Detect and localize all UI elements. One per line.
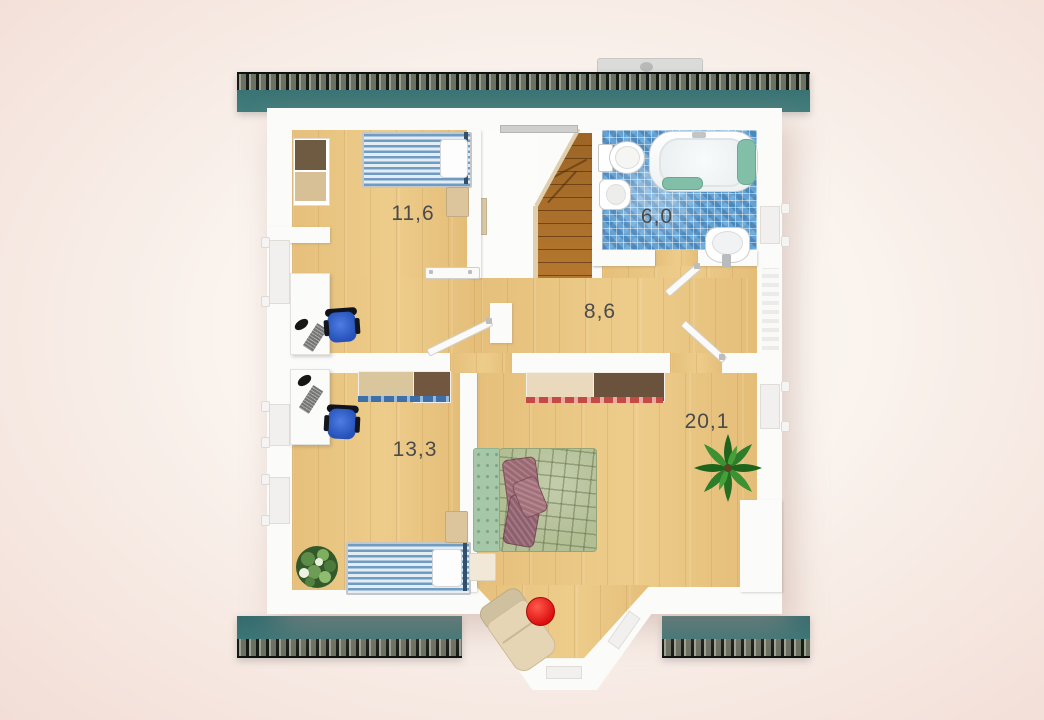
chair-seat (327, 408, 357, 439)
chair-armrest (324, 415, 330, 431)
radiator (762, 268, 779, 350)
double-bed-headboard (473, 448, 501, 552)
wardrobe-bottom (295, 172, 326, 201)
window-sill-tab (781, 203, 790, 214)
skylight-knob (640, 62, 653, 72)
area-label-bathroom: 6,0 (641, 205, 673, 229)
window-sill-tab (261, 515, 270, 526)
bathtub-cushion (662, 177, 703, 190)
door-hinge (694, 263, 700, 269)
pillow (432, 549, 462, 587)
window-sill-tab (781, 236, 790, 247)
wall-bathroom-bottom-a (592, 250, 655, 266)
sink-pedestal (722, 254, 731, 267)
area-label-hallway: 8,6 (584, 300, 616, 324)
floor-doorway-left (450, 353, 512, 373)
cabinet-tan (526, 372, 594, 400)
window-right-bathroom (760, 206, 780, 244)
bidet-basin (606, 184, 626, 205)
nightstand (446, 187, 469, 217)
toilet-seat (615, 146, 640, 169)
roof-tiles (237, 74, 810, 90)
wardrobe-top (295, 140, 326, 170)
window-left-2 (269, 404, 290, 446)
window-right-master (760, 384, 780, 429)
chair-armrest (355, 417, 361, 433)
area-label-room-lower-left: 13,3 (393, 438, 438, 462)
door-hinge (719, 354, 725, 360)
roof-strip-bottom-left (237, 616, 462, 658)
chair-seat (327, 311, 357, 343)
window-sill-tab (261, 237, 270, 248)
stairwell-window (500, 125, 578, 133)
bed-bench (469, 553, 496, 581)
roof-strip-bottom-right (662, 616, 810, 658)
pillow (440, 139, 468, 178)
floor-doorway-bath (655, 250, 698, 266)
roof-strip-top (237, 72, 810, 112)
window-sill-tab (781, 381, 790, 392)
office-chair-lower (324, 404, 362, 444)
plant (292, 542, 342, 592)
bathtub-cushion (737, 139, 756, 185)
wardrobe (293, 138, 330, 206)
chair-armrest (354, 318, 360, 334)
floor-hallway (481, 278, 757, 353)
chair-armrest (323, 320, 329, 336)
nightstand (445, 511, 468, 543)
window-sill-tab (261, 437, 270, 448)
door-post (490, 303, 512, 343)
door-hinge (486, 318, 492, 324)
door-hardware (468, 270, 472, 274)
stair-landing (481, 130, 537, 278)
bay-window-center (546, 666, 582, 679)
office-chair-upper (324, 307, 363, 347)
stair-rail (533, 206, 538, 278)
wall-step-right (740, 500, 782, 592)
window-sill-tab (261, 296, 270, 307)
area-label-master-bedroom: 20,1 (685, 410, 730, 434)
roof-tiles (237, 639, 462, 656)
sink-basin (712, 231, 743, 255)
window-left-1 (269, 240, 290, 304)
window-left-3 (269, 477, 290, 524)
window-sill-tab (261, 474, 270, 485)
window-sill-tab (781, 421, 790, 432)
bathtub-faucet (692, 132, 706, 138)
landing-door (480, 198, 487, 235)
red-stool (526, 597, 555, 626)
window-sill-tab (261, 401, 270, 412)
door-hardware (429, 270, 433, 274)
bed-headboard (463, 542, 467, 591)
roof-tiles (662, 639, 810, 656)
floor-plan: 11,6 6,0 8,6 13,3 20,1 (0, 0, 1044, 720)
palm-plant (692, 432, 764, 504)
area-label-bedroom-upper-left: 11,6 (391, 202, 434, 226)
cabinet-red-trim (526, 397, 663, 403)
shelf-blue-bins (358, 396, 449, 402)
